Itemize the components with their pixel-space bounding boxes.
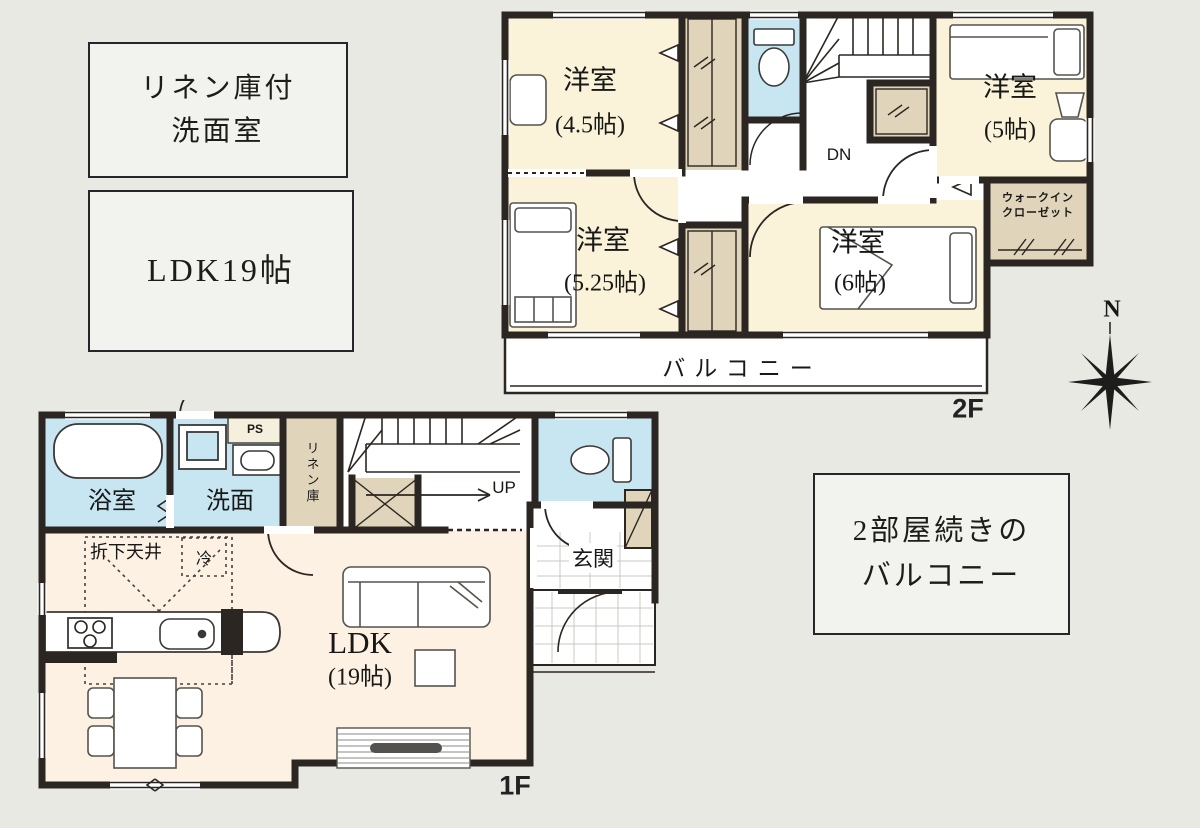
room-label-bath: 浴室	[88, 481, 136, 516]
1f-porch	[530, 590, 655, 672]
note-balcony: 2部屋続きの バルコニー	[813, 473, 1070, 635]
room-label-2f-6: 洋室	[831, 221, 885, 260]
2f-wardrobe	[510, 75, 546, 125]
1f-washer-icon	[179, 425, 226, 469]
wic-label-line1: ウォークイン	[1002, 189, 1074, 205]
note-line: LDK19帖	[147, 246, 295, 296]
1f-wood-deck	[337, 728, 470, 768]
stairs-up-label: UP	[492, 478, 516, 498]
note-linen-washroom: リネン庫付 洗面室	[88, 42, 348, 178]
balcony-label-2f: バルコニー	[662, 349, 822, 383]
room-size-2f-6: (6帖)	[834, 263, 886, 298]
note-line: バルコニー	[862, 554, 1021, 599]
ps-label: PS	[247, 422, 263, 436]
plan-2f: 洋室 (4.5帖) 洋室 (5帖) 洋室 (5.25帖) 洋室 (6帖) バルコ…	[498, 5, 1098, 425]
plan-1f: 浴室 洗面 PS リネン庫 UP 玄関 LDK (19帖) 折下天井 冷	[30, 400, 690, 815]
1f-shoe-cabinet	[625, 490, 652, 548]
linen-closet-label: リネン庫	[303, 441, 322, 505]
1f-vanity-icon	[233, 445, 282, 475]
floorplan-page: リネン庫付 洗面室 LDK19帖 2部屋続きの バルコニー	[0, 0, 1200, 828]
note-ldk-size: LDK19帖	[88, 190, 354, 352]
ldk-size-label: (19帖)	[328, 657, 392, 692]
note-line: 洗面室	[171, 110, 264, 153]
compass-north-label: N	[1103, 297, 1120, 324]
room-label-2f-45: 洋室	[563, 59, 617, 98]
refrigerator-label: 冷	[196, 545, 212, 569]
floor-label-1f: 1F	[499, 771, 531, 802]
1f-sofa	[343, 567, 490, 627]
1f-side-table	[415, 650, 455, 686]
room-label-washroom: 洗面	[206, 481, 254, 516]
note-line: リネン庫付	[140, 67, 295, 110]
room-size-2f-45: (4.5帖)	[555, 105, 625, 140]
wic-label-line2: クローゼット	[1002, 204, 1074, 220]
room-size-2f-5: (5帖)	[984, 110, 1036, 145]
floor-label-2f: 2F	[952, 394, 984, 425]
lowered-ceiling-label: 折下天井	[90, 538, 162, 564]
room-label-entrance: 玄関	[569, 543, 617, 573]
1f-kitchen-base	[45, 652, 117, 663]
room-label-2f-5: 洋室	[983, 66, 1037, 105]
note-line: 2部屋続きの	[853, 509, 1031, 554]
1f-sink-icon	[160, 619, 214, 649]
room-label-2f-525: 洋室	[576, 219, 630, 258]
1f-bathtub	[54, 424, 162, 478]
room-size-2f-525: (5.25帖)	[564, 263, 646, 298]
stairs-dn-label: DN	[827, 145, 852, 165]
compass-star	[1068, 334, 1152, 430]
compass: N	[1055, 292, 1165, 432]
1f-kitchen-panel	[221, 609, 243, 655]
